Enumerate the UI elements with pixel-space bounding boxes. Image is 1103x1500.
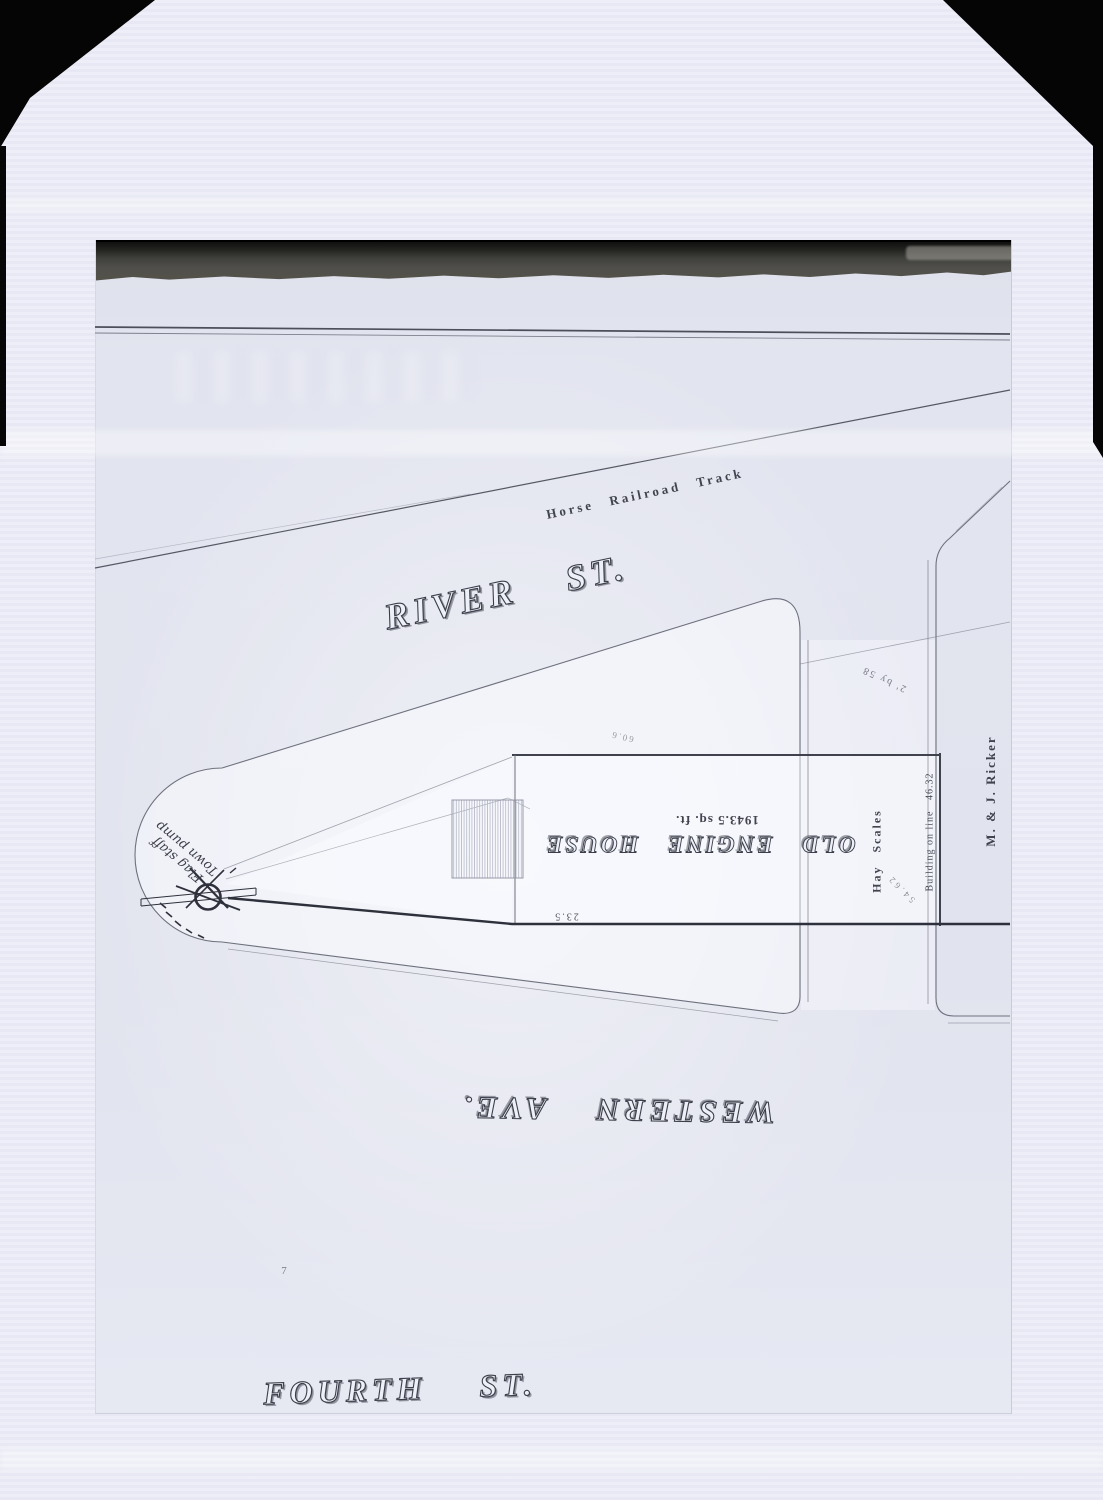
sheet-top-rule [95,327,1010,334]
engine-house-name: OLD ENGINE HOUSE [544,831,855,857]
hay-scales-label: Hay Scales [870,809,885,893]
engine-house-area: 1943.5 sq. ft. [675,812,759,828]
engine-house-front-dim: 23.5 [553,911,579,922]
building-on-line-text: Building on line [925,811,936,892]
line-dimension: 46.32 [925,773,936,801]
western-ave-label: WESTERN AVE. [459,1089,776,1131]
survey-linework [0,0,1103,1500]
building-on-line-label: Building on line 46.32 [925,773,936,892]
misc-mark: 7 [281,1265,287,1277]
hatched-building [452,800,523,878]
background-edge [0,146,6,446]
horse-railroad-line [95,390,1010,568]
photo-paper: Horse Railroad Track RIVER ST. OLD ENGIN… [0,0,1103,1500]
owner-label: M. & J. Ricker [983,735,999,846]
photograph-of-plat-map: Horse Railroad Track RIVER ST. OLD ENGIN… [0,0,1103,1500]
